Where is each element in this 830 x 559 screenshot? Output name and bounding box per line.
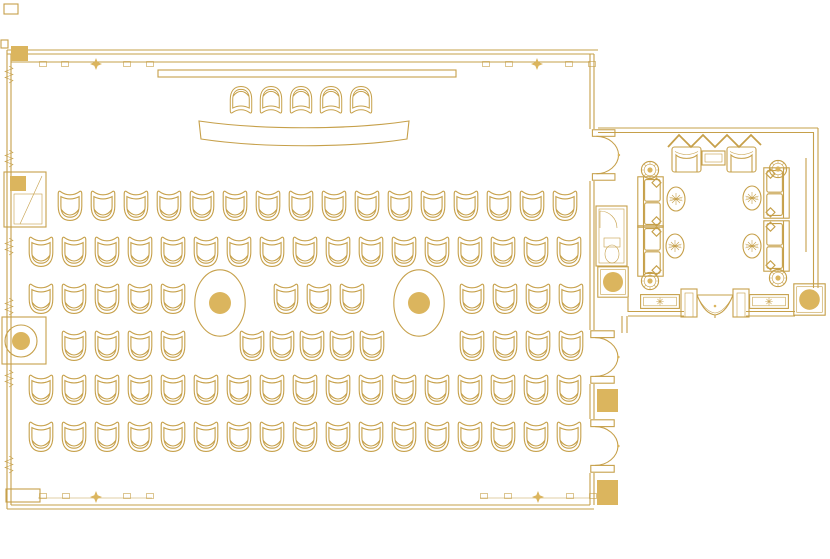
audience-chair	[491, 422, 515, 451]
audience-chair	[359, 422, 383, 451]
foyer-decor	[668, 135, 761, 318]
audience-chair	[128, 422, 152, 451]
ornament-panel	[641, 295, 680, 309]
audience-chair	[520, 191, 544, 220]
head-chair	[260, 86, 281, 113]
audience-chair	[524, 375, 548, 404]
head-chair	[290, 86, 311, 113]
audience-chair	[274, 284, 298, 313]
planter	[769, 160, 786, 177]
double-door	[591, 420, 620, 472]
audience-chair	[326, 422, 350, 451]
audience-chair	[524, 422, 548, 451]
audience-chair	[95, 237, 119, 266]
audience-chair	[392, 422, 416, 451]
audience-chair	[29, 375, 53, 404]
audience-chair	[62, 375, 86, 404]
diamond-ornament-icon	[90, 58, 102, 70]
entry-vestibule	[4, 172, 46, 227]
audience-seating	[29, 86, 583, 451]
wall-break-icon	[5, 150, 13, 167]
audience-chair	[62, 422, 86, 451]
planter	[641, 161, 658, 178]
diamond-ornament-icon	[532, 491, 544, 503]
audience-chair	[194, 422, 218, 451]
wall-cap	[1, 40, 8, 48]
audience-chair	[557, 375, 581, 404]
area-rug	[667, 187, 685, 211]
audience-chair	[29, 422, 53, 451]
audience-chair	[491, 237, 515, 266]
lounge-armchair	[727, 147, 756, 172]
audience-chair	[330, 331, 354, 360]
floor-plan-drawing	[0, 0, 830, 559]
top-wall-details	[40, 58, 596, 70]
column-pier	[598, 267, 628, 297]
wall-pier	[597, 389, 618, 412]
audience-chair	[388, 191, 412, 220]
audience-chair	[128, 237, 152, 266]
audience-chair	[157, 191, 181, 220]
audience-chair	[240, 331, 264, 360]
column	[394, 270, 444, 336]
sofa	[638, 226, 663, 276]
wall-break-icon	[5, 238, 13, 255]
audience-chair	[227, 237, 251, 266]
stage-soffit	[158, 70, 456, 77]
wall-pier	[11, 46, 28, 61]
audience-chair	[359, 237, 383, 266]
audience-chair	[460, 331, 484, 360]
area-rug	[743, 234, 761, 258]
double-door	[592, 130, 620, 180]
audience-chair	[29, 284, 53, 313]
audience-chair	[62, 331, 86, 360]
audience-chair	[322, 191, 346, 220]
audience-chair	[460, 284, 484, 313]
audience-chair	[128, 375, 152, 404]
audience-chair	[307, 284, 331, 313]
audience-chair	[559, 331, 583, 360]
audience-chair	[425, 375, 449, 404]
drapery-zigzag-icon	[668, 135, 761, 147]
double-door	[591, 331, 620, 383]
audience-chair	[524, 237, 548, 266]
coffee-table-top	[705, 154, 722, 162]
audience-chair	[340, 284, 364, 313]
audience-chair	[161, 331, 185, 360]
audience-chair	[95, 422, 119, 451]
niche-door-icon	[600, 211, 617, 228]
wall-break-icon	[5, 66, 13, 83]
area-rug	[666, 234, 684, 258]
audience-chair	[190, 191, 214, 220]
audience-chair	[360, 331, 384, 360]
curtained-doorway	[681, 289, 749, 318]
audience-chair	[553, 191, 577, 220]
audience-chair	[392, 375, 416, 404]
audience-chair	[62, 284, 86, 313]
head-chair	[320, 86, 341, 113]
right-wall-segments	[590, 54, 594, 505]
audience-chair	[293, 237, 317, 266]
planter	[769, 269, 786, 286]
audience-chair	[161, 422, 185, 451]
audience-chair	[392, 237, 416, 266]
audience-chair	[487, 191, 511, 220]
audience-chair	[128, 284, 152, 313]
area-rug	[743, 186, 761, 210]
sofa	[764, 221, 789, 271]
audience-chair	[493, 331, 517, 360]
head-chair	[350, 86, 371, 113]
audience-chair	[161, 284, 185, 313]
wall-pier	[597, 480, 618, 505]
foyer-furniture	[11, 46, 825, 505]
audience-chair	[260, 237, 284, 266]
audience-chair	[557, 422, 581, 451]
audience-chair	[425, 422, 449, 451]
coffee-table	[702, 151, 725, 165]
audience-chair	[526, 331, 550, 360]
audience-chair	[95, 284, 119, 313]
audience-chair	[300, 331, 324, 360]
audience-chair	[326, 375, 350, 404]
audience-chair	[29, 237, 53, 266]
audience-chair	[293, 375, 317, 404]
audience-chair	[458, 422, 482, 451]
audience-chair	[124, 191, 148, 220]
audience-chair	[260, 422, 284, 451]
audience-chair	[293, 422, 317, 451]
audience-chair	[58, 191, 82, 220]
audience-chair	[454, 191, 478, 220]
bottom-wall-details	[40, 491, 597, 503]
audience-chair	[526, 284, 550, 313]
audience-chair	[557, 237, 581, 266]
floor-plan	[0, 0, 830, 559]
lounge-armchair	[672, 147, 701, 172]
wall-break-icon	[5, 370, 13, 387]
wall-break-icon	[5, 298, 13, 315]
stage-area	[199, 121, 409, 146]
sofa	[638, 177, 663, 227]
audience-chair	[128, 331, 152, 360]
audience-chair	[256, 191, 280, 220]
audience-chair	[491, 375, 515, 404]
audience-chair	[326, 237, 350, 266]
audience-chair	[260, 375, 284, 404]
audience-chair	[161, 237, 185, 266]
audience-chair	[559, 284, 583, 313]
audience-chair	[270, 331, 294, 360]
audience-chair	[493, 284, 517, 313]
service-niche	[596, 206, 627, 266]
audience-chair	[355, 191, 379, 220]
audience-chair	[289, 191, 313, 220]
audience-chair	[359, 375, 383, 404]
basin-icon	[605, 245, 619, 263]
head-table	[199, 121, 409, 146]
main-hall-walls	[1, 4, 598, 509]
audience-chair	[62, 237, 86, 266]
audience-chair	[95, 331, 119, 360]
audience-chair	[227, 422, 251, 451]
wall-break-icon	[5, 456, 13, 473]
audience-chair	[425, 237, 449, 266]
audience-chair	[194, 237, 218, 266]
sofa	[764, 168, 789, 218]
audience-chair	[421, 191, 445, 220]
head-chair	[230, 86, 251, 113]
foyer-walls	[596, 128, 818, 333]
audience-chair	[458, 237, 482, 266]
ornament-panel	[750, 295, 789, 309]
plan-marker	[4, 4, 18, 14]
audience-chair	[458, 375, 482, 404]
column	[195, 270, 245, 336]
diamond-ornament-icon	[531, 58, 543, 70]
column-pier	[794, 284, 825, 315]
audience-chair	[227, 375, 251, 404]
room-columns	[195, 270, 444, 336]
planter	[641, 272, 658, 289]
audience-chair	[91, 191, 115, 220]
left-wall-column	[2, 317, 46, 364]
audience-chair	[161, 375, 185, 404]
audience-chair	[194, 375, 218, 404]
audience-chair	[95, 375, 119, 404]
audience-chair	[223, 191, 247, 220]
diamond-ornament-icon	[90, 491, 102, 503]
